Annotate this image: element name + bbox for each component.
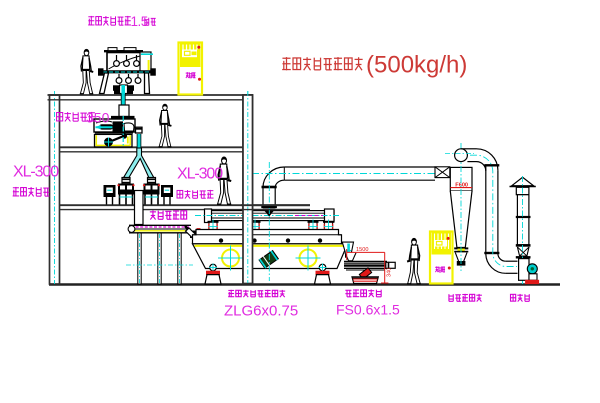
svg-text:FS0.6x1.5: FS0.6x1.5 [336,302,400,318]
svg-text:XL-300: XL-300 [13,164,59,181]
svg-text:340: 340 [387,268,393,277]
svg-text:1500: 1500 [356,247,368,253]
svg-text:ZLG6x0.75: ZLG6x0.75 [224,303,298,320]
svg-text:(500kg/h): (500kg/h) [366,52,467,79]
svg-text:XL-300: XL-300 [177,166,223,183]
svg-text:350: 350 [86,110,110,126]
